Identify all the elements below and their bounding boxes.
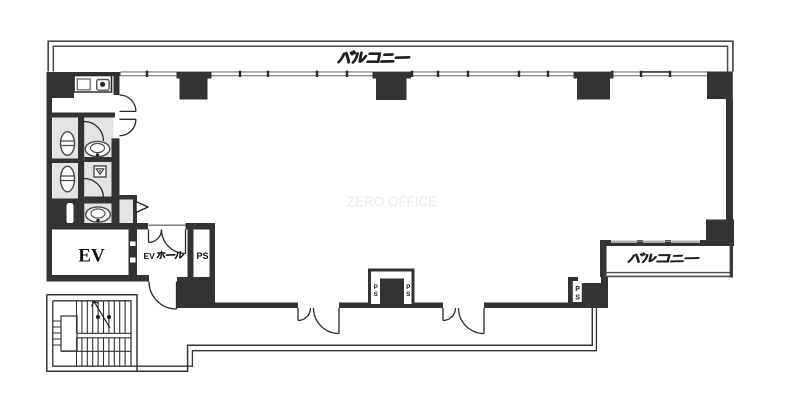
svg-text:EV: EV xyxy=(78,245,105,266)
svg-text:P: P xyxy=(406,285,410,291)
svg-text:P: P xyxy=(575,286,580,293)
svg-text:S: S xyxy=(575,295,580,302)
svg-text:S: S xyxy=(406,292,410,298)
svg-text:S: S xyxy=(374,292,378,298)
svg-text:PS: PS xyxy=(196,251,208,261)
svg-text:ZERO OFFICE: ZERO OFFICE xyxy=(347,194,437,211)
svg-text:EV: EV xyxy=(144,251,156,261)
svg-text:P: P xyxy=(374,285,378,291)
